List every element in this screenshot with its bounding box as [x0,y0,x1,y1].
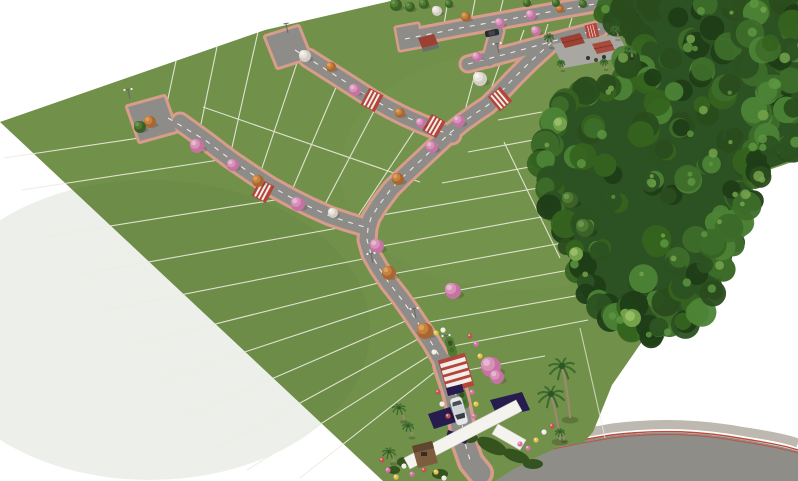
playground-equipment [594,58,598,62]
playground-equipment [602,55,606,59]
site-plan-render [0,0,798,481]
playground-equipment [586,56,590,60]
